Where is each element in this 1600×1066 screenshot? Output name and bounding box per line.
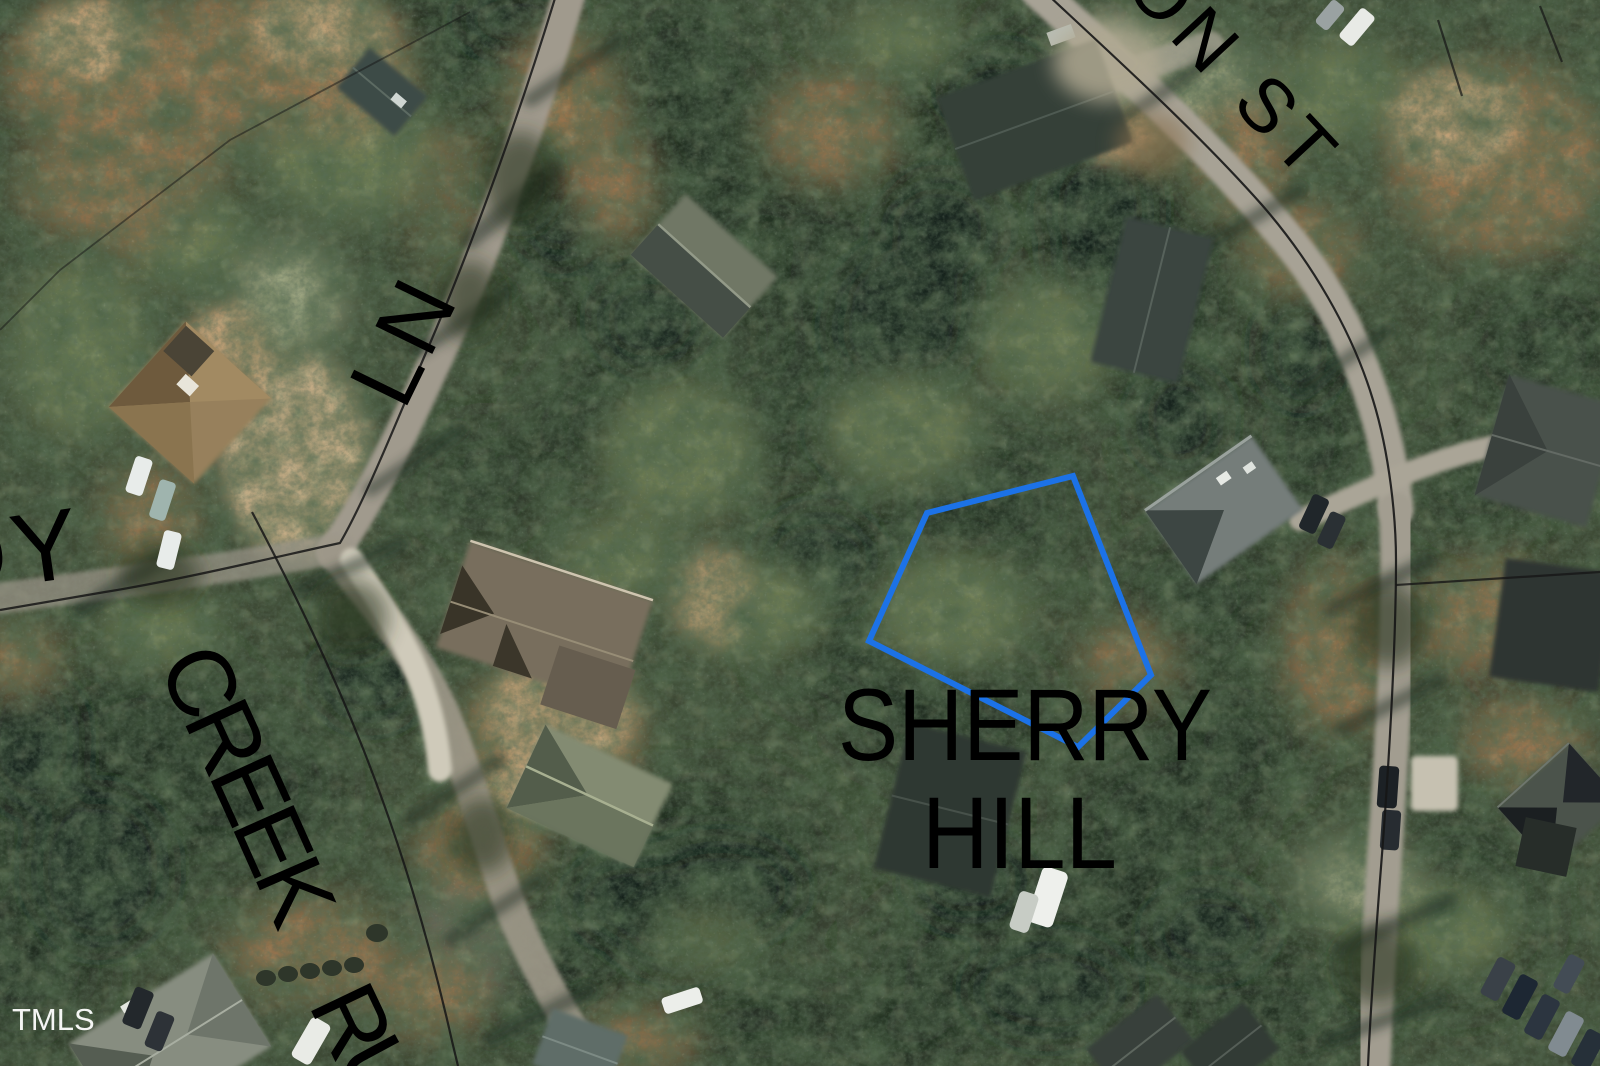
svg-text:TMLS: TMLS xyxy=(12,1002,95,1037)
svg-text:DY: DY xyxy=(0,486,91,618)
svg-text:HILL: HILL xyxy=(922,776,1117,890)
svg-text:SHERRY: SHERRY xyxy=(838,668,1212,782)
